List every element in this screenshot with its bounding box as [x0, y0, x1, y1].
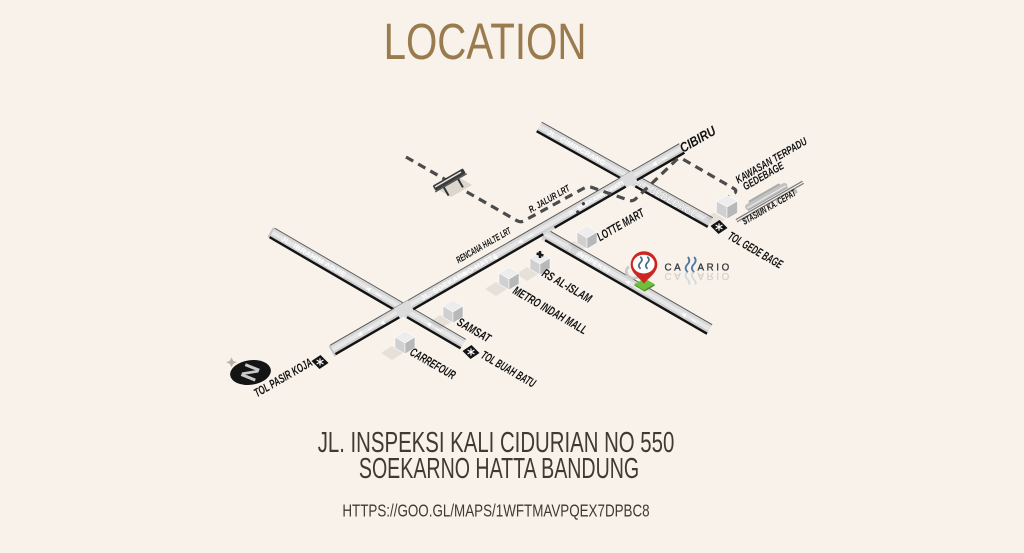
svg-text:CA: CA [665, 270, 684, 281]
svg-text:HTTPS://GOO.GL/MAPS/1WFTMAVPQE: HTTPS://GOO.GL/MAPS/1WFTMAVPQEX7DPBC8 [342, 502, 649, 521]
svg-text:SOEKARNO HATTA BANDUNG: SOEKARNO HATTA BANDUNG [359, 454, 639, 485]
svg-text:ARIO: ARIO [698, 270, 732, 281]
svg-text:LOCATION: LOCATION [384, 12, 587, 70]
